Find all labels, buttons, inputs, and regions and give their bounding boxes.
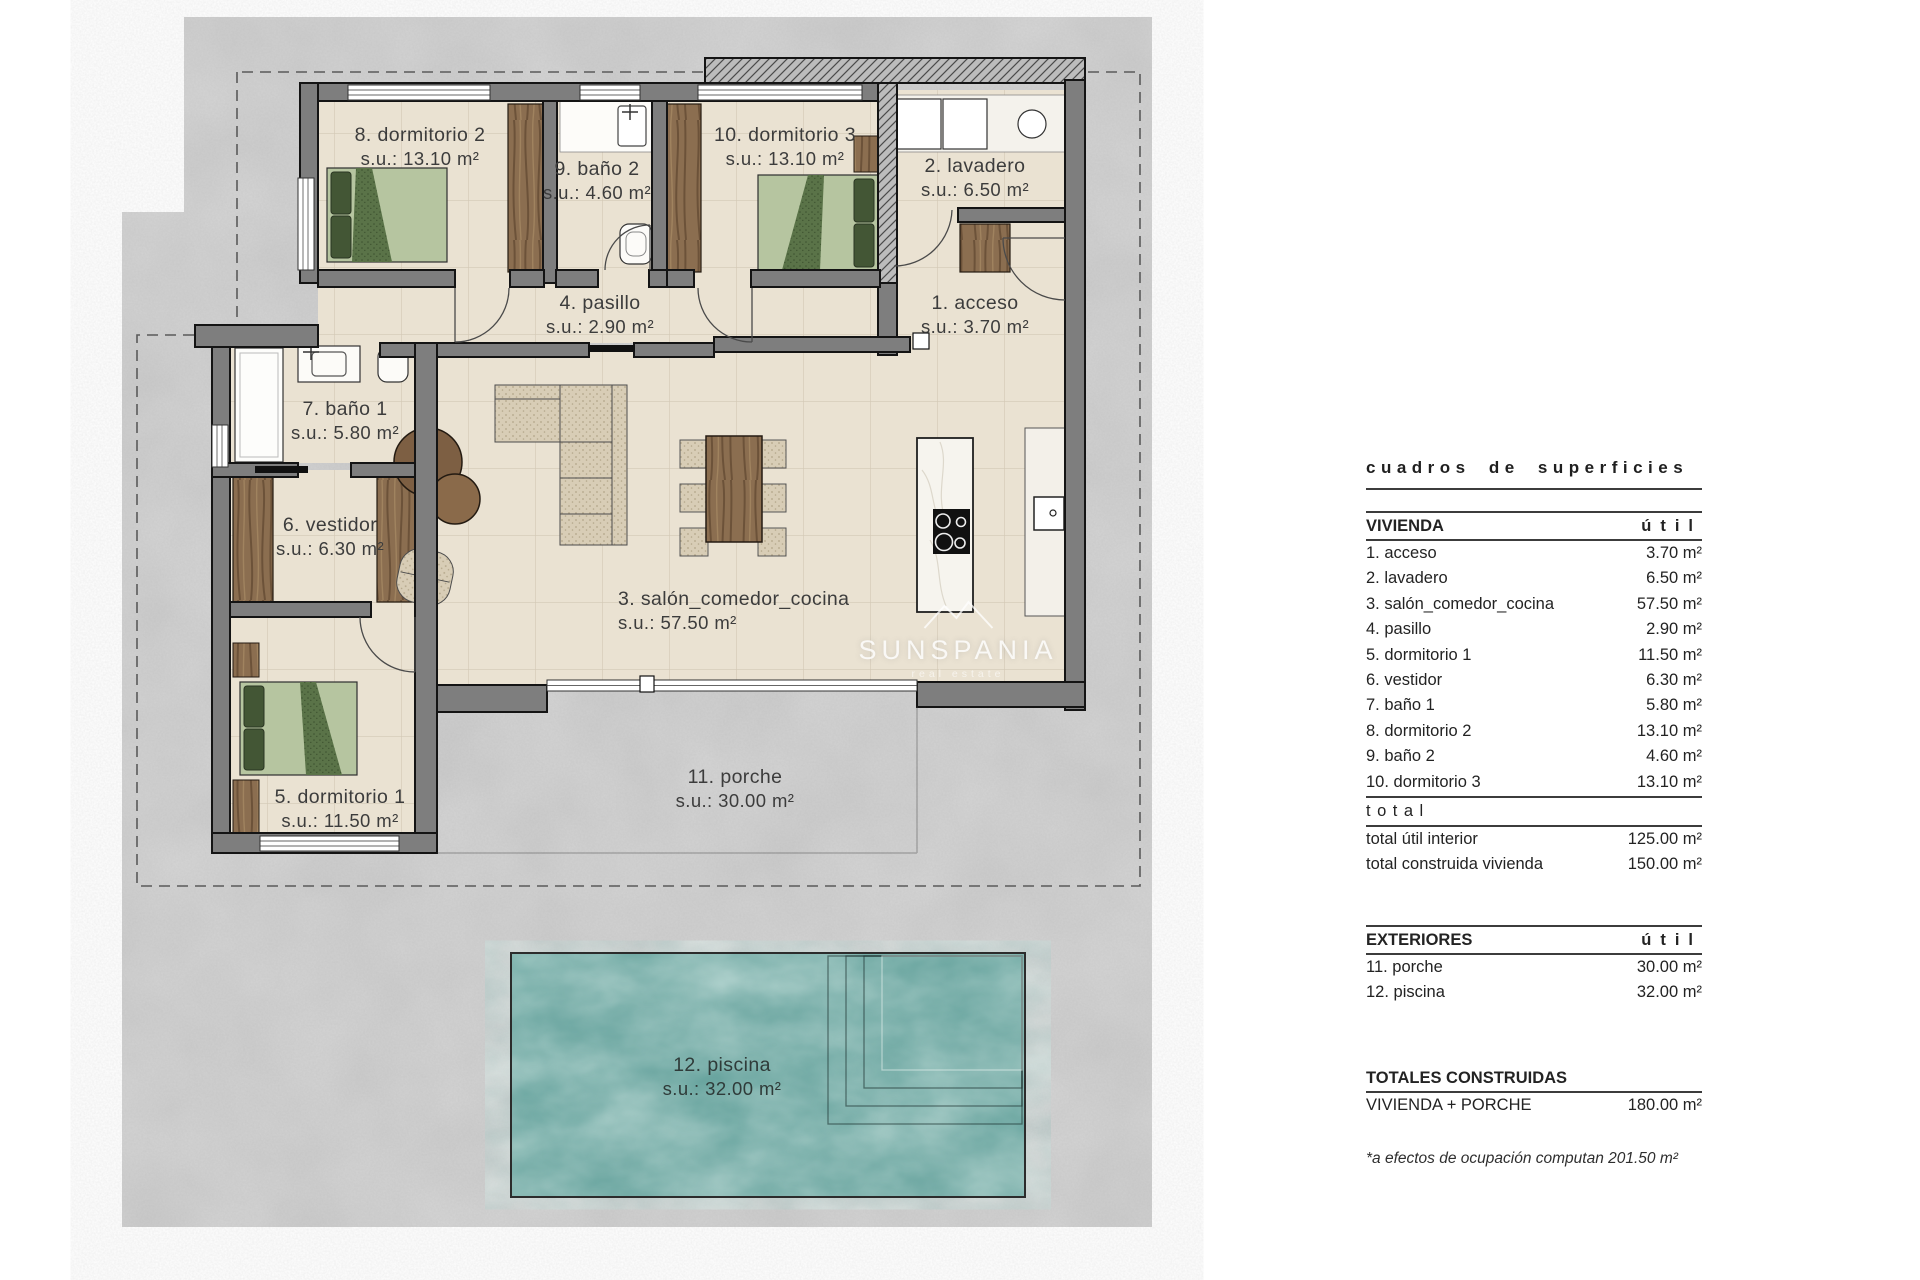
room-area: s.u.: 11.50 m² [275,810,406,833]
room-area: s.u.: 2.90 m² [546,316,654,339]
room-area: s.u.: 5.80 m² [291,422,399,445]
room-name: 2. lavadero [921,155,1029,179]
table-row: 11. porche30.00 m² [1366,955,1702,980]
row-value: 3.70 m² [1646,541,1702,566]
row-label: 8. dormitorio 2 [1366,719,1471,744]
room-area: s.u.: 13.10 m² [355,148,486,171]
row-value: 6.50 m² [1646,566,1702,591]
table-row-total: total útil interior125.00 m² [1366,827,1702,852]
row-value: 180.00 m² [1628,1093,1702,1118]
row-label: 6. vestidor [1366,668,1442,693]
totales-header: TOTALES CONSTRUIDAS [1366,1065,1702,1093]
floor-plan-page: 8. dormitorio 2 s.u.: 13.10 m² 9. baño 2… [0,0,1920,1280]
room-area: s.u.: 6.50 m² [921,179,1029,202]
room-name: 1. acceso [921,292,1029,316]
room-label-dormitorio-3: 10. dormitorio 3 s.u.: 13.10 m² [714,124,856,170]
row-label: 7. baño 1 [1366,693,1435,718]
row-value: 13.10 m² [1637,770,1702,795]
exteriores-header: EXTERIORES útil [1366,925,1702,955]
table-row: 5. dormitorio 111.50 m² [1366,643,1702,668]
vivienda-table: VIVIENDA útil 1. acceso3.70 m² 2. lavade… [1366,511,1702,878]
panel-title: cuadros de superficies [1366,458,1702,490]
room-area: s.u.: 3.70 m² [921,316,1029,339]
room-label-dormitorio-2: 8. dormitorio 2 s.u.: 13.10 m² [355,124,486,170]
room-label-bano-2: 9. baño 2 s.u.: 4.60 m² [543,158,651,204]
window-icon [698,85,862,100]
room-label-pasillo: 4. pasillo s.u.: 2.90 m² [546,292,654,338]
kitchen-island [917,438,973,612]
row-label: 3. salón_comedor_cocina [1366,592,1554,617]
room-name: 11. porche [676,766,795,790]
laundry-sink-icon [1018,110,1046,138]
room-label-piscina: 12. piscina s.u.: 32.00 m² [663,1054,782,1100]
washer-icon [943,99,987,149]
window-icon [212,425,228,467]
row-label: total útil interior [1366,827,1478,852]
table-row: 8. dormitorio 213.10 m² [1366,719,1702,744]
table-row: 6. vestidor6.30 m² [1366,668,1702,693]
shower [235,348,283,462]
room-area: s.u.: 30.00 m² [676,790,795,813]
room-area: s.u.: 32.00 m² [663,1078,782,1101]
row-label: 1. acceso [1366,541,1437,566]
wardrobe [854,136,878,172]
occupancy-note: *a efectos de ocupación computan 201.50 … [1366,1150,1702,1168]
nightstand [233,780,259,834]
row-label: 12. piscina [1366,980,1445,1005]
room-area: s.u.: 13.10 m² [714,148,856,171]
watermark: SUNSPANIA real estate [858,600,1057,680]
exteriores-table: EXTERIORES útil 11. porche30.00 m² 12. p… [1366,925,1702,1006]
table-row: 3. salón_comedor_cocina57.50 m² [1366,592,1702,617]
room-name: 4. pasillo [546,292,654,316]
room-label-bano-1: 7. baño 1 s.u.: 5.80 m² [291,398,399,444]
row-value: 32.00 m² [1637,980,1702,1005]
room-name: 5. dormitorio 1 [275,786,406,810]
bed-dormitorio-3 [758,175,878,270]
bed-dormitorio-2 [327,168,447,262]
room-label-porche: 11. porche s.u.: 30.00 m² [676,766,795,812]
window-icon [260,836,399,851]
exteriores-header-col: útil [1641,927,1702,953]
row-label: VIVIENDA + PORCHE [1366,1093,1532,1118]
row-label: 9. baño 2 [1366,744,1435,769]
room-label-lavadero: 2. lavadero s.u.: 6.50 m² [921,155,1029,201]
room-name: 9. baño 2 [543,158,651,182]
room-name: 6. vestidor [276,514,384,538]
total-band: total [1366,796,1702,827]
row-value: 30.00 m² [1637,955,1702,980]
vivienda-header-col: útil [1641,513,1702,539]
window-icon [348,85,490,100]
room-name: 8. dormitorio 2 [355,124,486,148]
row-value: 6.30 m² [1646,668,1702,693]
room-name: 12. piscina [663,1054,782,1078]
room-name: 10. dormitorio 3 [714,124,856,148]
table-row: 10. dormitorio 313.10 m² [1366,770,1702,795]
room-area: s.u.: 4.60 m² [543,182,651,205]
exteriores-header-label: EXTERIORES [1366,927,1472,953]
vivienda-header: VIVIENDA útil [1366,511,1702,541]
wardrobe [233,474,273,602]
row-label: 11. porche [1366,955,1443,980]
room-label-acceso: 1. acceso s.u.: 3.70 m² [921,292,1029,338]
room-label-dormitorio-1: 5. dormitorio 1 s.u.: 11.50 m² [275,786,406,832]
table-row: 7. baño 15.80 m² [1366,693,1702,718]
glass-wall [547,680,917,691]
room-name: 3. salón_comedor_cocina [618,588,849,612]
wardrobe [508,104,543,272]
row-value: 4.60 m² [1646,744,1702,769]
row-value: 11.50 m² [1638,643,1702,668]
row-label: 2. lavadero [1366,566,1448,591]
surfaces-panel: cuadros de superficies VIVIENDA útil 1. … [1366,458,1702,1168]
row-value: 13.10 m² [1637,719,1702,744]
row-value: 2.90 m² [1646,617,1702,642]
row-value: 57.50 m² [1637,592,1702,617]
row-label: 5. dormitorio 1 [1366,643,1471,668]
door-jamb [640,676,654,692]
row-value: 5.80 m² [1646,693,1702,718]
row-label: total construida vivienda [1366,852,1543,877]
watermark-tagline: real estate [858,668,1057,680]
toilet-icon [620,224,652,264]
dining-table [706,436,762,542]
table-row: 9. baño 24.60 m² [1366,744,1702,769]
table-row: 12. piscina32.00 m² [1366,980,1702,1005]
table-row-total: total construida vivienda150.00 m² [1366,852,1702,877]
row-label: 10. dormitorio 3 [1366,770,1481,795]
watermark-roof-icon [922,600,994,630]
door-leaf [588,345,635,352]
vivienda-header-label: VIVIENDA [1366,513,1444,539]
row-label: 4. pasillo [1366,617,1431,642]
watermark-brand: SUNSPANIA [858,635,1057,666]
room-label-salon: 3. salón_comedor_cocina s.u.: 57.50 m² [618,588,849,634]
table-row: 1. acceso3.70 m² [1366,541,1702,566]
bed-dormitorio-1 [240,682,357,775]
row-value: 150.00 m² [1628,852,1702,877]
room-name: 7. baño 1 [291,398,399,422]
table-row: VIVIENDA + PORCHE180.00 m² [1366,1093,1702,1118]
window-icon [298,178,314,270]
room-label-vestidor: 6. vestidor s.u.: 6.30 m² [276,514,384,560]
door-leaf [255,466,308,473]
washer-icon [897,99,941,149]
room-area: s.u.: 57.50 m² [618,612,849,635]
wardrobe [667,104,701,272]
totales-table: TOTALES CONSTRUIDAS VIVIENDA + PORCHE180… [1366,1065,1702,1167]
kitchen-sink-icon [1034,497,1064,530]
table-row: 4. pasillo2.90 m² [1366,617,1702,642]
window-icon [580,85,640,100]
room-area: s.u.: 6.30 m² [276,538,384,561]
table-row: 2. lavadero6.50 m² [1366,566,1702,591]
row-value: 125.00 m² [1628,827,1702,852]
nightstand [233,643,259,677]
acceso-closet [960,224,1010,272]
